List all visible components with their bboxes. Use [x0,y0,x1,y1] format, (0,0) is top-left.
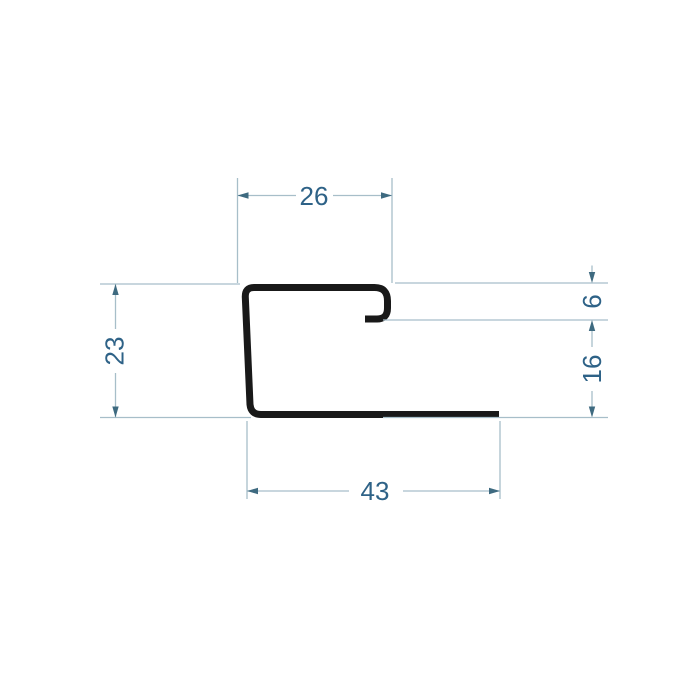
arrow-left-icon [238,192,249,198]
dimension-left-height: 23 [100,284,252,418]
profile-drawing: 26 23 6 16 [0,0,700,700]
dim-26-label: 26 [300,181,329,211]
dim-23-label: 23 [100,337,130,366]
arrow-left-icon [247,488,258,494]
arrow-up-icon [112,284,118,295]
dimension-side-height: 16 [383,320,608,418]
arrow-down-icon [589,272,595,283]
profile-outline [245,288,499,415]
arrow-down-icon [589,407,595,418]
arrow-right-icon [489,488,500,494]
arrow-right-icon [381,192,392,198]
dimension-bottom-width: 43 [247,421,500,506]
arrow-down-icon [112,407,118,418]
dimension-top-width: 26 [238,178,393,283]
dim-6-label: 6 [577,294,607,308]
dim-43-label: 43 [361,476,390,506]
drawing-canvas: 26 23 6 16 [0,0,700,700]
dimension-lip-height: 6 [383,266,608,321]
dim-16-label: 16 [577,355,607,384]
arrow-up-icon [589,320,595,331]
